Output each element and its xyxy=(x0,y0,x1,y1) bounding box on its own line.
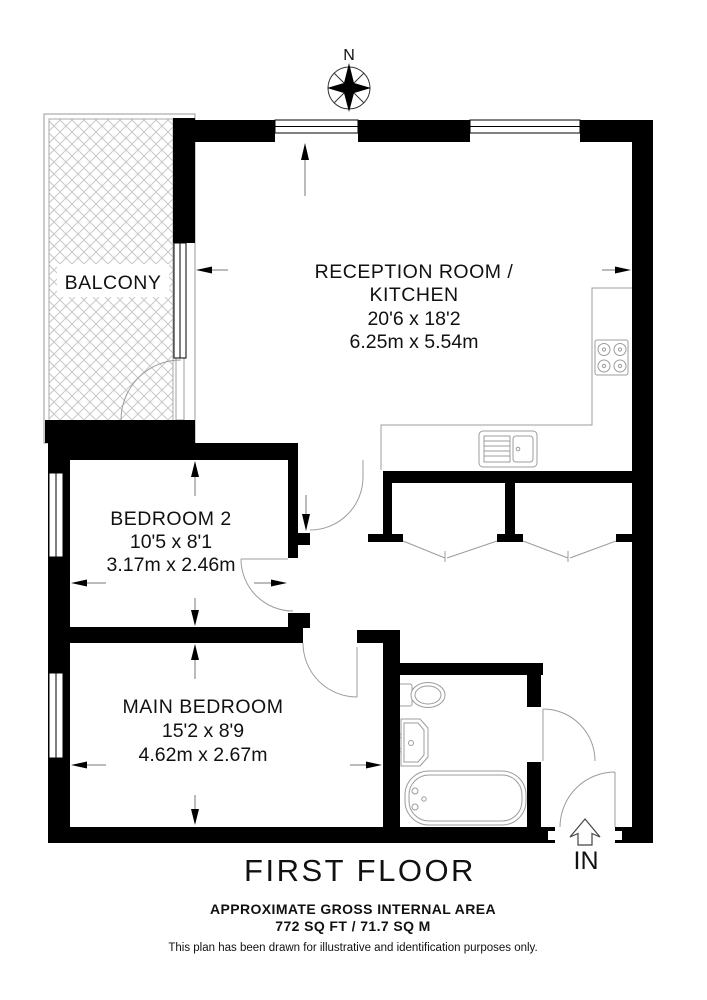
balcony-label: BALCONY xyxy=(65,272,162,294)
wall-top-2 xyxy=(358,120,470,142)
floorplan-drawing: N BALCONY xyxy=(0,0,707,1000)
cupboard-pier-1 xyxy=(383,483,392,537)
cupboard-pier-2 xyxy=(505,483,515,537)
entry-label: IN xyxy=(574,847,599,875)
window-main-bedroom xyxy=(49,673,63,758)
bedroom2-metric: 3.17m x 2.46m xyxy=(107,554,236,576)
wall-bedroom2-top xyxy=(48,443,298,460)
reception-door xyxy=(310,460,363,530)
cupboard-foot-3 xyxy=(616,534,632,542)
toilet-icon xyxy=(399,683,445,708)
wall-jamb-hall xyxy=(298,533,310,545)
wall-bedroom2-right-lower xyxy=(288,613,310,628)
entry-arrow-icon xyxy=(570,819,600,845)
cupboard-foot-1 xyxy=(368,534,403,542)
main-bedroom-metric: 4.62m x 2.67m xyxy=(139,744,268,766)
entry-jamb-right xyxy=(615,831,622,840)
reception-name-1: RECEPTION ROOM / xyxy=(315,261,514,283)
compass-label: N xyxy=(343,47,355,64)
window-top-2 xyxy=(470,120,580,133)
window-top-1 xyxy=(275,120,358,133)
main-bedroom-name: MAIN BEDROOM xyxy=(123,696,284,718)
area-label: APPROXIMATE GROSS INTERNAL AREA xyxy=(210,901,496,917)
bathroom-sink-icon xyxy=(396,719,428,766)
wall-balcony-bottom xyxy=(45,420,195,443)
entrance: IN xyxy=(570,819,600,875)
floorplan-page: N BALCONY xyxy=(0,0,707,1000)
wall-bottom-left xyxy=(48,827,555,843)
hob-icon xyxy=(595,340,628,375)
reception-metric: 6.25m x 5.54m xyxy=(350,331,479,353)
bedroom2-door xyxy=(241,559,293,611)
reception-name-2: KITCHEN xyxy=(369,284,458,306)
wall-mainbed-top-right xyxy=(357,630,400,643)
wall-balcony-right-top xyxy=(173,118,195,243)
bathroom-fixtures xyxy=(396,683,526,826)
compass-icon: N xyxy=(327,47,371,112)
bedroom2-imperial: 10'5 x 8'1 xyxy=(130,531,212,553)
balcony-area: BALCONY xyxy=(44,114,195,443)
main-bedroom-imperial: 15'2 x 8'9 xyxy=(162,720,244,742)
disclaimer-text: This plan has been drawn for illustrativ… xyxy=(168,942,537,954)
area-value: 772 SQ FT / 71.7 SQ M xyxy=(275,918,430,934)
floor-title: FIRST FLOOR xyxy=(244,853,476,888)
footer: FIRST FLOOR APPROXIMATE GROSS INTERNAL A… xyxy=(168,853,537,954)
cupboard-doors xyxy=(403,541,616,562)
wall-bedroom2-right xyxy=(288,460,298,558)
bedroom2-name: BEDROOM 2 xyxy=(110,508,232,530)
kitchen-sink-icon xyxy=(479,431,537,467)
wall-bathroom-right-upper xyxy=(527,663,541,707)
cupboard-foot-2 xyxy=(497,534,523,542)
compass-star xyxy=(327,63,371,112)
bathtub-icon xyxy=(405,771,526,825)
window-bedroom2 xyxy=(49,473,63,557)
window-balcony xyxy=(174,243,186,358)
entry-jamb-left xyxy=(548,831,555,840)
wall-reception-bottom xyxy=(383,471,632,483)
wall-bathroom-right-lower xyxy=(527,762,541,832)
reception-imperial: 20'6 x 18'2 xyxy=(367,308,460,330)
bathroom-door xyxy=(543,709,595,761)
entry-door xyxy=(560,772,615,827)
wall-right xyxy=(632,120,653,843)
main-bedroom-door xyxy=(303,643,357,697)
wall-bedrooms-divider xyxy=(48,627,303,643)
wall-bathroom-top xyxy=(390,663,543,675)
